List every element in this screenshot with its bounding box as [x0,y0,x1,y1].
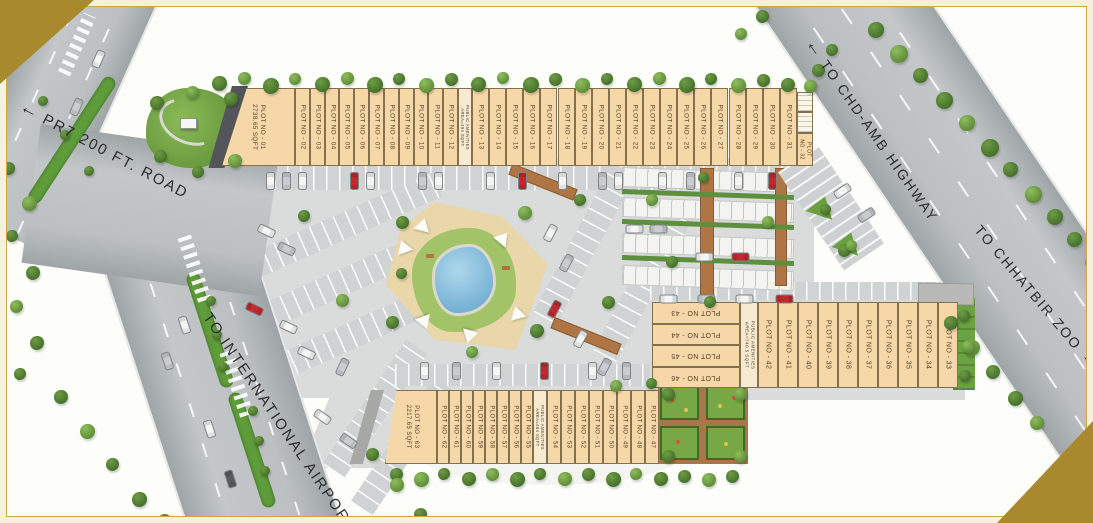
tree-icon [702,473,716,487]
plot-09[interactable]: PLOT NO - 09 [399,88,414,166]
tree-icon [462,472,476,486]
car [418,172,427,190]
car [492,362,501,380]
plot-11[interactable]: PLOT NO - 11 [428,88,443,166]
plot-04[interactable]: PLOT NO - 04 [325,88,340,166]
tree-icon [10,300,23,313]
plot-52[interactable]: PLOT NO - 52 [575,390,589,464]
tree-icon [212,76,227,91]
tree-icon [158,514,171,523]
car [558,172,567,190]
plot-21[interactable]: PLOT NO - 21 [609,88,626,166]
tree-icon [986,365,1000,379]
car [588,362,597,380]
plot-40[interactable]: PLOT NO - 40 [798,302,818,388]
tree-icon [106,458,119,471]
tree-icon [30,336,44,350]
plot-13[interactable]: PLOT NO - 13 [472,88,489,166]
tree-icon [726,470,739,483]
car [266,172,275,190]
tree-icon [497,72,509,84]
tree-icon [14,368,26,380]
plot-24[interactable]: PLOT NO - 24 [660,88,677,166]
car [626,225,644,234]
plot-38[interactable]: PLOT NO - 38 [838,302,858,388]
plot-34[interactable]: PLOT NO - 34 [918,302,938,388]
tree-icon [414,508,427,521]
plot-56[interactable]: PLOT NO - 56 [509,390,521,464]
tree-icon [438,468,450,480]
car [696,253,714,262]
plot-25[interactable]: PLOT NO - 25 [677,88,694,166]
tree-icon [757,74,770,87]
plot-58[interactable]: PLOT NO - 58 [485,390,497,464]
car [486,172,495,190]
plot-15[interactable]: PLOT NO - 15 [506,88,523,166]
plot-18[interactable]: PLOT NO - 18 [558,88,575,166]
tree-icon [132,492,147,507]
lounger [502,266,510,270]
plot-53[interactable]: PLOT NO - 53 [561,390,575,464]
plot-45[interactable]: PLOT NO - 45 [652,345,740,367]
car [420,362,429,380]
public-amenities-strip: PUBLIC AMENITIESAREA=494 SQFT [533,390,547,464]
tree-icon [341,72,354,85]
plot-39[interactable]: PLOT NO - 39 [818,302,838,388]
plot-07[interactable]: PLOT NO - 07 [369,88,384,166]
car [660,295,678,304]
plot-23[interactable]: PLOT NO - 23 [643,88,660,166]
car [350,172,359,190]
utility-box [797,112,813,133]
plot-12[interactable]: PLOT NO - 12 [443,88,458,166]
tree-icon [54,390,68,404]
tree-icon [654,472,668,486]
car [598,172,607,190]
plot-10[interactable]: PLOT NO - 10 [414,88,429,166]
clubhouse [180,118,197,129]
car [622,362,631,380]
plot-03[interactable]: PLOT NO - 03 [310,88,325,166]
car [298,172,307,190]
tree-icon [289,73,301,85]
plot-42[interactable]: PLOT NO - 42 [758,302,778,388]
tree-icon [705,73,717,85]
plot-17[interactable]: PLOT NO - 17 [540,88,557,166]
public-amenities-strip: PUBLIC AMENITIESAREA=494 SQFT [458,88,472,166]
plot-61[interactable]: PLOT NO - 61 [449,390,461,464]
tree-icon [414,472,429,487]
plot-49[interactable]: PLOT NO - 49 [617,390,631,464]
plot-16[interactable]: PLOT NO - 16 [523,88,540,166]
car [776,295,794,304]
tree-icon [390,478,404,492]
tree-icon [1085,255,1093,269]
plot-05[interactable]: PLOT NO - 05 [339,88,354,166]
tree-icon [630,468,642,480]
plot-60[interactable]: PLOT NO - 60 [461,390,473,464]
plot-33[interactable]: PLOT NO - 33 [938,302,958,388]
plot-19[interactable]: PLOT NO - 19 [575,88,592,166]
tree-icon [445,73,458,86]
plot-54[interactable]: PLOT NO - 54 [547,390,561,464]
car [650,225,668,234]
car [366,172,375,190]
plot-32[interactable]: PLOTNO - 32 [797,133,813,166]
plot-44[interactable]: PLOT NO - 44 [652,324,740,346]
plot-20[interactable]: PLOT NO - 20 [592,88,609,166]
car [736,295,754,304]
central-amenity [386,202,548,350]
plot-36[interactable]: PLOT NO - 36 [878,302,898,388]
plot-08[interactable]: PLOT NO - 08 [384,88,399,166]
plot-28[interactable]: PLOT NO - 28 [729,88,746,166]
plot-46[interactable]: PLOT NO - 46 [652,367,740,389]
plot-43[interactable]: PLOT NO - 43 [652,302,740,324]
plot-37[interactable]: PLOT NO - 37 [858,302,878,388]
paved-path [700,168,714,298]
plot-02[interactable]: PLOT NO - 02 [295,88,310,166]
utility-box [797,92,813,112]
tree-icon [510,472,525,487]
site-plan-canvas: ← PR7 200 FT. ROAD TO INTERNATIONAL AIRP… [0,0,1093,523]
tree-icon [80,424,95,439]
lounger [426,254,434,258]
tree-icon [26,266,40,280]
plot-06[interactable]: PLOT NO - 06 [354,88,369,166]
tree-icon [653,72,666,85]
plot-47[interactable]: PLOT NO - 47 [645,390,659,464]
plot-14[interactable]: PLOT NO - 14 [489,88,506,166]
tree-icon [393,73,405,85]
public-amenities-strip: PUBLIC AMENITIESAREA=740.5 SQFT [740,302,758,388]
tree-icon [678,470,691,483]
car [614,172,623,190]
car [518,172,527,190]
car [768,172,777,190]
plot-26[interactable]: PLOT NO - 26 [694,88,711,166]
car [282,172,291,190]
tree-icon [735,28,747,40]
plot-41[interactable]: PLOT NO - 41 [778,302,798,388]
car [734,172,743,190]
plot-51[interactable]: PLOT NO - 51 [589,390,603,464]
plot-30[interactable]: PLOT NO - 30 [763,88,780,166]
car [434,172,443,190]
car [686,172,695,190]
tree-icon [238,72,251,85]
tree-icon [606,472,621,487]
plot-59[interactable]: PLOT NO - 59 [473,390,485,464]
plot-31[interactable]: PLOT NO - 31 [780,88,797,166]
car [452,362,461,380]
tree-icon [601,73,613,85]
car [658,172,667,190]
plot-27[interactable]: PLOT NO - 27 [711,88,728,166]
tree-icon [1008,391,1023,406]
tree-icon [549,73,562,86]
car [540,362,549,380]
car [732,253,750,262]
plot-50[interactable]: PLOT NO - 50 [603,390,617,464]
plot-57[interactable]: PLOT NO - 57 [497,390,509,464]
plot-29[interactable]: PLOT NO - 29 [746,88,763,166]
plot-48[interactable]: PLOT NO - 48 [631,390,645,464]
plot-22[interactable]: PLOT NO - 22 [626,88,643,166]
plot-35[interactable]: PLOT NO - 35 [898,302,918,388]
plot-55[interactable]: PLOT NO - 55 [521,390,533,464]
plot-62[interactable]: PLOT NO - 62 [437,390,449,464]
